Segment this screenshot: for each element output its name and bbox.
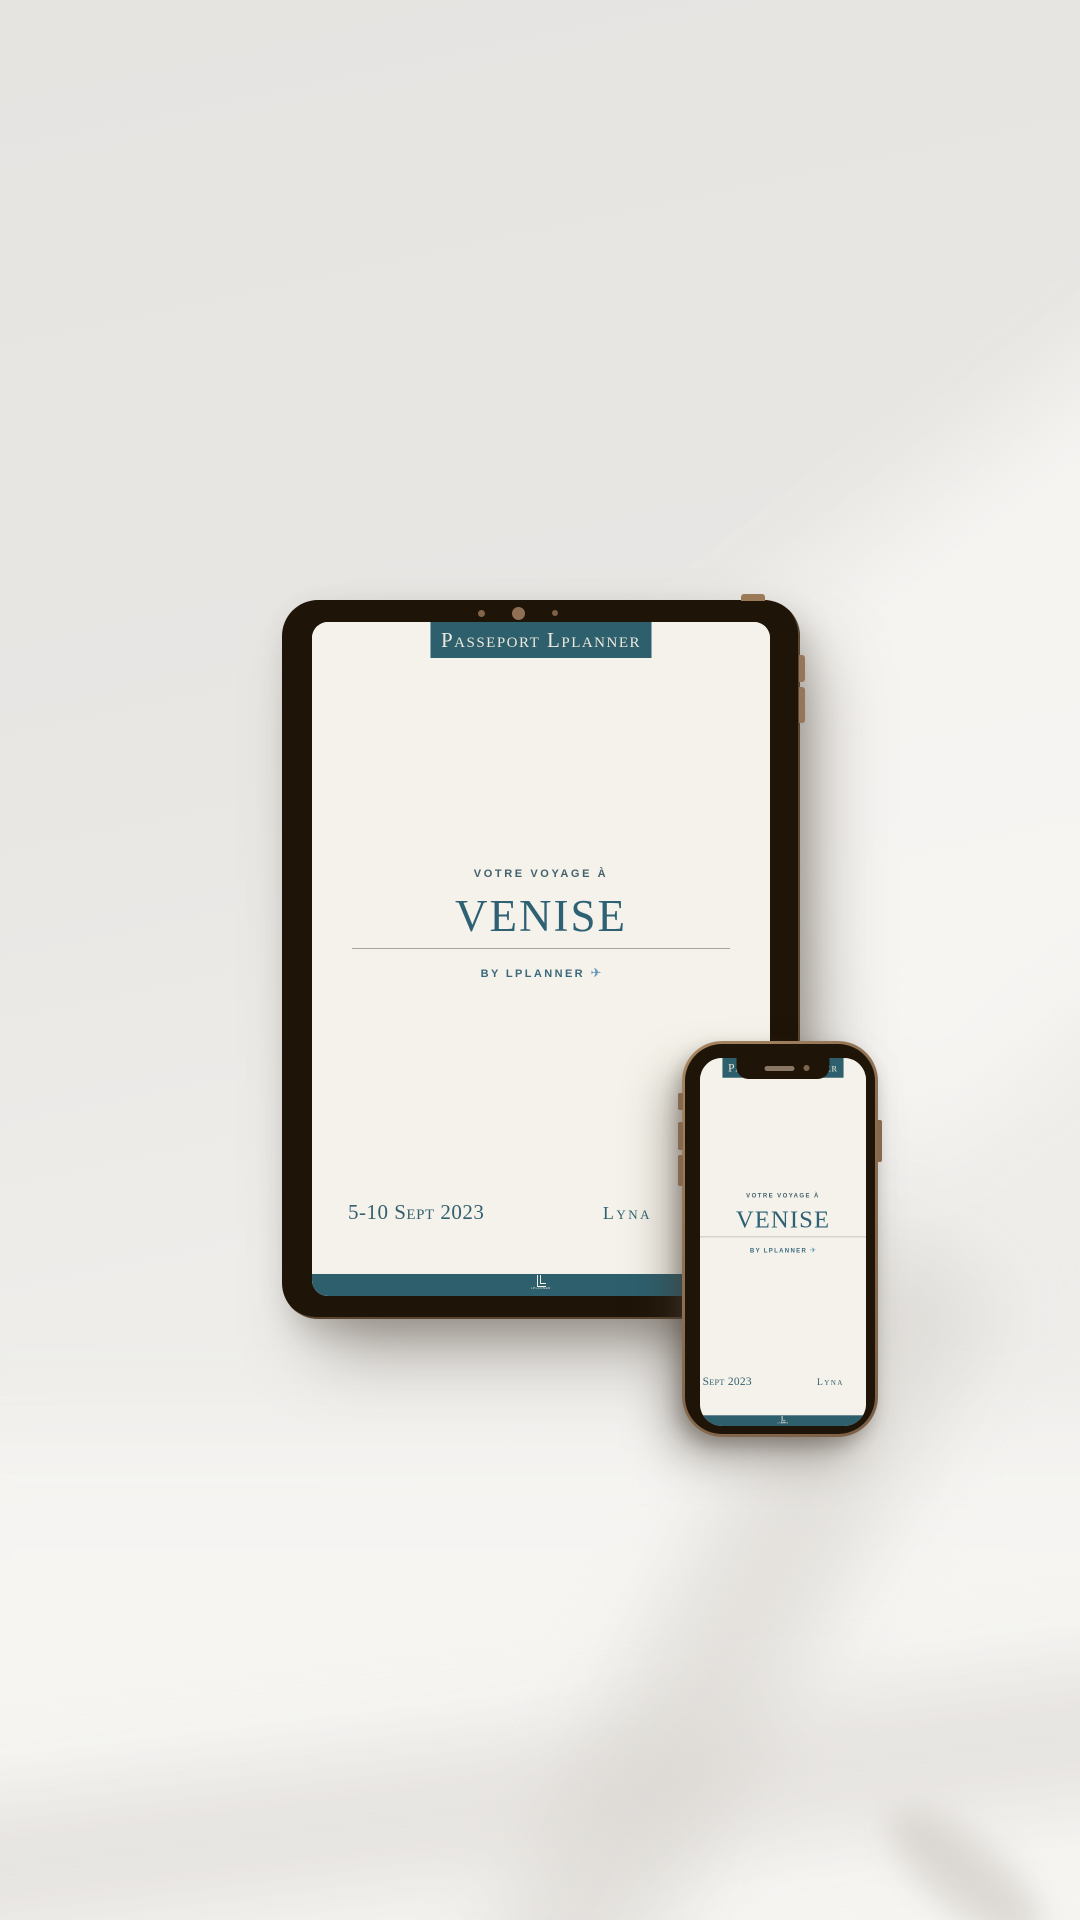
light-glow-bottom — [0, 1430, 1080, 1920]
byline: BY LPLANNER ✈ — [700, 1247, 866, 1255]
plane-icon: ✈ — [591, 966, 602, 981]
tablet-volume-down-button — [799, 687, 805, 723]
phone-camera — [803, 1065, 809, 1071]
footer-bar: LPLANNER — [700, 1415, 866, 1426]
planner-cover-page: Passeport Lplanner VOTRE VOYAGE À VENISE… — [700, 1058, 866, 1426]
phone-page-scaler: Passeport Lplanner VOTRE VOYAGE À VENISE… — [700, 1058, 866, 1426]
lplanner-monogram-icon — [537, 1275, 546, 1287]
cover-meta-row: 5-10 Sept 2023 Lyna — [348, 1200, 652, 1225]
phone-screen: Passeport Lplanner VOTRE VOYAGE À VENISE… — [700, 1058, 866, 1426]
cover-title-block: VOTRE VOYAGE À VENISE BY LPLANNER ✈ — [700, 1193, 866, 1255]
footer-brand-text: LPLANNER — [778, 1422, 789, 1424]
tablet-front-camera — [478, 606, 558, 620]
passport-banner-title: Passeport Lplanner — [441, 628, 641, 653]
byline: BY LPLANNER ✈ — [312, 966, 770, 981]
phone-device: Passeport Lplanner VOTRE VOYAGE À VENISE… — [682, 1041, 878, 1437]
title-underline — [700, 1237, 866, 1238]
camera-sensor-dot — [552, 610, 558, 616]
phone-bezel: Passeport Lplanner VOTRE VOYAGE À VENISE… — [685, 1044, 875, 1434]
phone-notch — [737, 1058, 830, 1079]
phone-mute-button — [678, 1093, 683, 1110]
trip-eyebrow: VOTRE VOYAGE À — [700, 1193, 866, 1200]
trip-dates: 5-10 Sept 2023 — [348, 1200, 484, 1225]
leaf-shadow — [870, 1787, 1061, 1920]
trip-title: VENISE — [700, 1207, 866, 1232]
plane-icon: ✈ — [810, 1247, 816, 1255]
cover-title-block: VOTRE VOYAGE À VENISE BY LPLANNER ✈ — [312, 868, 770, 981]
trip-dates: 5-10 Sept 2023 — [700, 1375, 752, 1389]
camera-lens-dot — [512, 607, 525, 620]
traveler-name: Lyna — [817, 1376, 844, 1388]
phone-volume-down-button — [678, 1155, 683, 1186]
footer-brand-text: LPLANNER — [531, 1287, 551, 1290]
horizontal-shadow-band — [0, 1645, 1080, 1920]
cover-meta-row: 5-10 Sept 2023 Lyna — [700, 1375, 844, 1389]
trip-title: VENISE — [312, 894, 770, 939]
phone-speaker — [764, 1066, 794, 1071]
phone-power-button — [877, 1120, 882, 1162]
phone-volume-up-button — [678, 1122, 683, 1150]
tablet-volume-up-button — [799, 655, 805, 682]
traveler-name: Lyna — [603, 1203, 652, 1224]
byline-text: BY LPLANNER — [750, 1248, 807, 1255]
title-underline — [352, 948, 730, 949]
byline-text: BY LPLANNER — [481, 968, 585, 980]
passport-banner: Passeport Lplanner — [431, 622, 652, 658]
lplanner-logo: LPLANNER — [521, 1275, 561, 1293]
mockup-scene: Passeport Lplanner VOTRE VOYAGE À VENISE… — [0, 0, 1080, 1920]
trip-eyebrow: VOTRE VOYAGE À — [312, 868, 770, 880]
lplanner-logo: LPLANNER — [772, 1416, 794, 1426]
camera-sensor-dot — [478, 610, 485, 617]
tablet-power-button — [741, 594, 765, 601]
